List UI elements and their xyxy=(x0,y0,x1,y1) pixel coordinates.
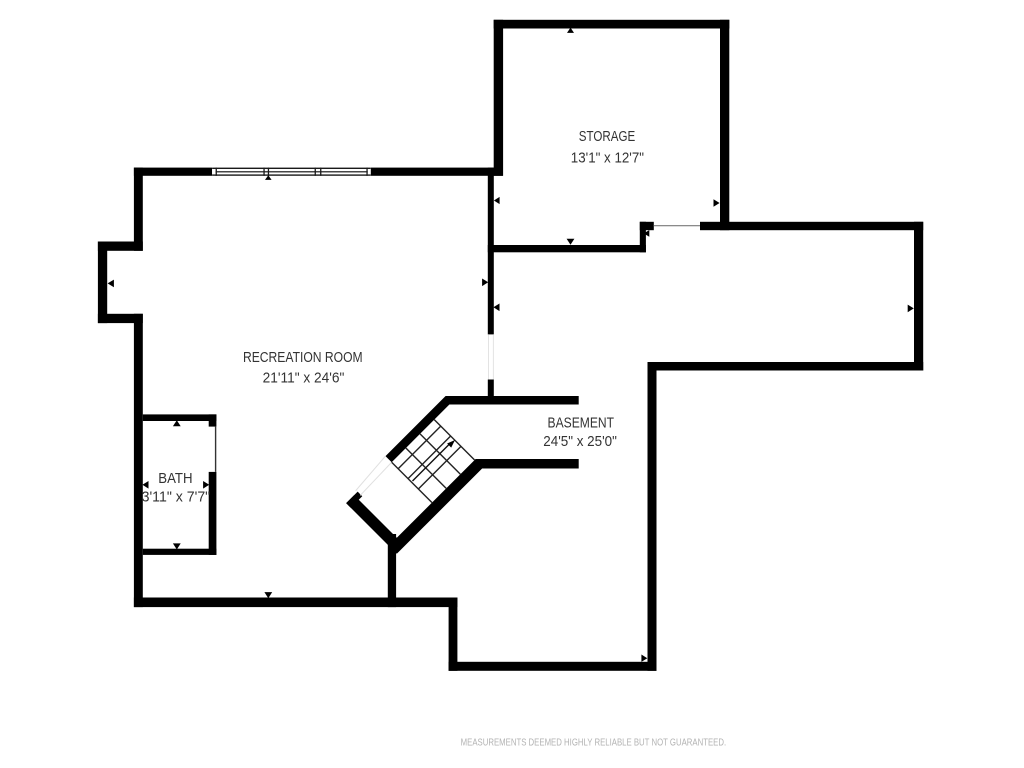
svg-text:BATH: BATH xyxy=(158,470,192,487)
svg-text:21'11" x 24'6": 21'11" x 24'6" xyxy=(263,369,345,386)
svg-text:3'11" x 7'7": 3'11" x 7'7" xyxy=(142,489,211,506)
svg-text:24'5" x 25'0": 24'5" x 25'0" xyxy=(543,433,617,450)
svg-text:MEASUREMENTS DEEMED HIGHLY REL: MEASUREMENTS DEEMED HIGHLY RELIABLE BUT … xyxy=(461,737,727,749)
svg-text:STORAGE: STORAGE xyxy=(579,128,635,145)
svg-text:13'1" x 12'7": 13'1" x 12'7" xyxy=(571,149,644,166)
svg-text:BASEMENT: BASEMENT xyxy=(548,415,615,432)
svg-text:RECREATION ROOM: RECREATION ROOM xyxy=(243,349,363,366)
